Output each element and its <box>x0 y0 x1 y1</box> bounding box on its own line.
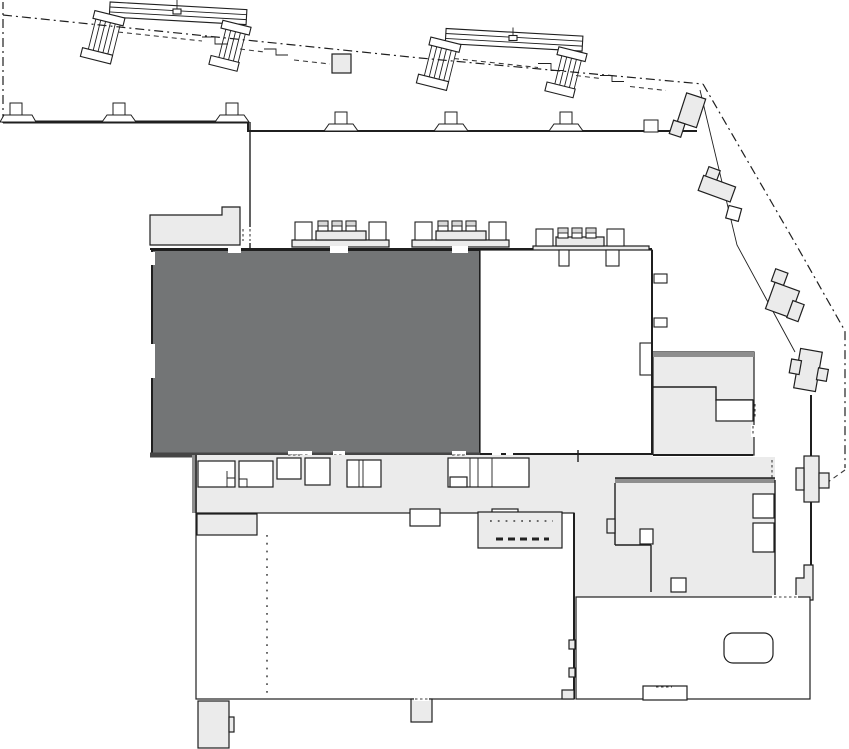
stair-icon[interactable] <box>478 512 562 548</box>
east-notch <box>753 523 774 552</box>
isolated-kiosk-square <box>332 54 351 73</box>
entry-alcove <box>643 686 687 700</box>
interior-gray-band <box>197 514 257 535</box>
wall-stub <box>559 250 569 266</box>
escalator-icon <box>416 28 666 99</box>
east-notch <box>753 494 774 518</box>
column-icon <box>102 103 136 122</box>
wall-stub <box>606 250 619 266</box>
highlighted-unit[interactable] <box>152 250 480 455</box>
vestibule <box>669 92 705 141</box>
boundary-jog <box>828 470 845 482</box>
escalator-run <box>209 20 251 72</box>
small-wall-box <box>644 120 658 132</box>
escalator-run <box>80 10 125 65</box>
vestibule <box>698 166 739 202</box>
small-room-upper-left[interactable] <box>150 207 240 245</box>
column-icon <box>549 112 583 131</box>
column-icon <box>215 103 249 122</box>
adjacent-unit[interactable] <box>480 250 652 455</box>
exterior-stubs <box>198 697 432 748</box>
floor-plan-canvas <box>0 0 849 749</box>
entry-capsule <box>796 456 829 502</box>
tub-table-icon <box>724 633 773 663</box>
wall-tab <box>640 343 652 375</box>
vestibule <box>761 269 812 322</box>
boundary-top <box>3 15 703 84</box>
alcove <box>716 400 753 421</box>
kiosk-row-icon <box>412 221 509 247</box>
column-icon <box>0 103 36 122</box>
wall-tab <box>654 318 667 327</box>
bottom-right-room[interactable] <box>576 595 810 700</box>
kiosk-row-icon <box>292 221 389 247</box>
vestibule <box>787 347 831 393</box>
wall-tab <box>607 519 615 533</box>
wall-tab <box>654 274 667 283</box>
doorway-bump <box>410 509 440 526</box>
wall-east <box>248 122 697 131</box>
door-box <box>640 529 653 544</box>
column-icon <box>434 112 468 131</box>
column-icon <box>324 112 358 131</box>
kiosk-square <box>726 205 742 221</box>
stair-stub <box>796 565 813 600</box>
door-box <box>671 578 686 592</box>
floor-plan-drawing <box>0 0 849 749</box>
